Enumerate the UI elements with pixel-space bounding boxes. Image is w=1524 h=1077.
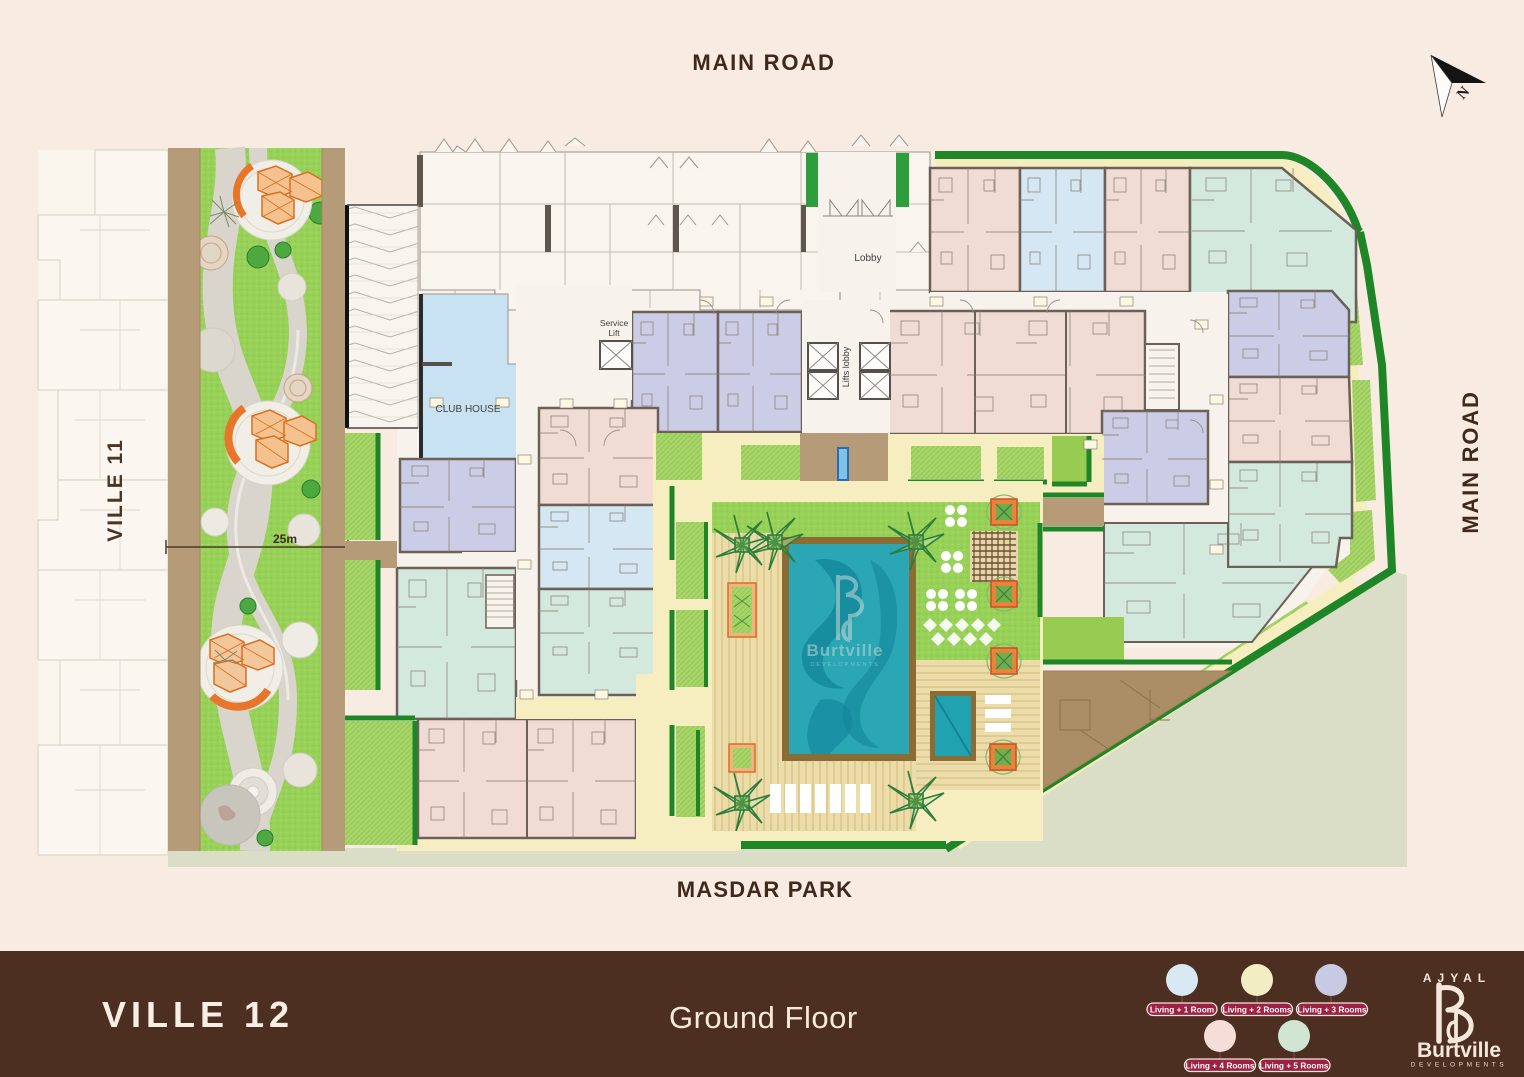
svg-text:Living + 5 Rooms: Living + 5 Rooms bbox=[1260, 1061, 1329, 1071]
svg-text:MAIN ROAD: MAIN ROAD bbox=[692, 50, 835, 75]
svg-text:MASDAR PARK: MASDAR PARK bbox=[677, 877, 854, 902]
svg-text:Burtville: Burtville bbox=[1417, 1039, 1501, 1062]
svg-text:Burtville: Burtville bbox=[806, 641, 883, 660]
svg-text:DEVELOPMENTS: DEVELOPMENTS bbox=[810, 662, 879, 668]
svg-text:Living + 3 Rooms: Living + 3 Rooms bbox=[1298, 1005, 1367, 1015]
svg-text:Living + 4 Rooms: Living + 4 Rooms bbox=[1186, 1061, 1255, 1071]
svg-text:AJYAL: AJYAL bbox=[1423, 971, 1491, 985]
svg-text:Lobby: Lobby bbox=[854, 253, 881, 264]
svg-text:25m: 25m bbox=[273, 532, 297, 546]
svg-text:Service: Service bbox=[600, 318, 629, 328]
svg-text:MAIN ROAD: MAIN ROAD bbox=[1458, 390, 1483, 533]
svg-text:Living + 2 Rooms: Living + 2 Rooms bbox=[1223, 1005, 1292, 1015]
svg-text:Ground Floor: Ground Floor bbox=[669, 1000, 858, 1035]
svg-text:Lifts lobby: Lifts lobby bbox=[841, 346, 851, 387]
svg-text:Living + 1 Room: Living + 1 Room bbox=[1150, 1005, 1214, 1015]
svg-text:VILLE 11: VILLE 11 bbox=[104, 438, 127, 542]
svg-text:DEVELOPMENTS: DEVELOPMENTS bbox=[1411, 1062, 1508, 1069]
svg-text:CLUB HOUSE: CLUB HOUSE bbox=[435, 404, 500, 415]
svg-text:Lift: Lift bbox=[608, 328, 620, 338]
svg-text:VILLE 12: VILLE 12 bbox=[102, 994, 294, 1035]
